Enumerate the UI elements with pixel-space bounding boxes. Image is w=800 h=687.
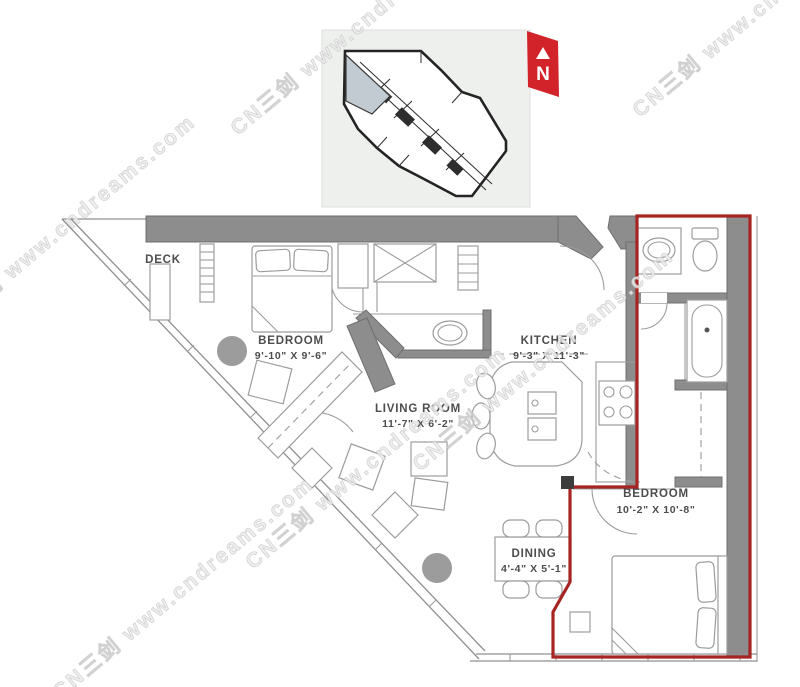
bed-1-pillow-right [293,249,328,272]
north-arrow: N [527,31,559,97]
bed-2-pillow-2 [696,607,717,648]
bench-2 [570,612,590,632]
bedroom-2-dims: 10'-2" X 10'-8" [617,504,696,516]
toilet-bowl [693,241,717,271]
utility-closet [458,246,478,290]
floor-plan-drawing: N [0,0,800,687]
north-label: N [536,64,550,85]
armchair-3 [411,478,448,510]
media-wall-diagonal [347,318,395,392]
deck-label: DECK [145,254,181,266]
bed-2-pillow-1 [696,561,717,602]
bathroom-door-gap [641,293,667,303]
chair-1 [248,360,292,404]
masterbath-wall-bottom [398,350,491,358]
entry-wall-stub [558,216,603,259]
bathtub-drain [705,328,710,333]
bathroom-door-arc [641,303,667,329]
bedroom-1-label: BEDROOM [258,335,324,347]
bedroom-1-dims: 9'-10" X 9'-6" [255,350,327,362]
floor-plan-page: N [0,0,800,687]
round-table-2 [422,553,452,583]
right-wall [727,216,751,657]
watermark-text: CN三剑 www.cndreams.com [628,0,800,122]
dresser-1 [150,264,170,320]
dining-label: DINING [511,548,556,560]
round-table-1 [217,336,247,366]
dining-dims: 4'-4" X 5'-1" [501,563,567,575]
bed-1-pillow-left [255,249,290,272]
dining-chair-3 [503,581,529,598]
nightstand-1 [338,244,368,288]
coffee-table-diamond [372,492,418,538]
bed-2-headboard [718,556,727,654]
watermark-text: CN三剑 www.cndreams.com [48,471,318,687]
key-plan [322,30,530,207]
boundary-corner-post [561,476,574,489]
closet-shelf-bottom [675,477,722,487]
dining-chair-4 [536,581,562,598]
bedroom-2-label: BEDROOM [623,488,689,500]
dining-chair-1 [503,520,529,537]
top-wall [146,216,560,242]
dining-chair-2 [536,520,562,537]
deck-window-strip [200,244,214,302]
toilet-tank [692,228,718,239]
bathtub [687,300,727,382]
